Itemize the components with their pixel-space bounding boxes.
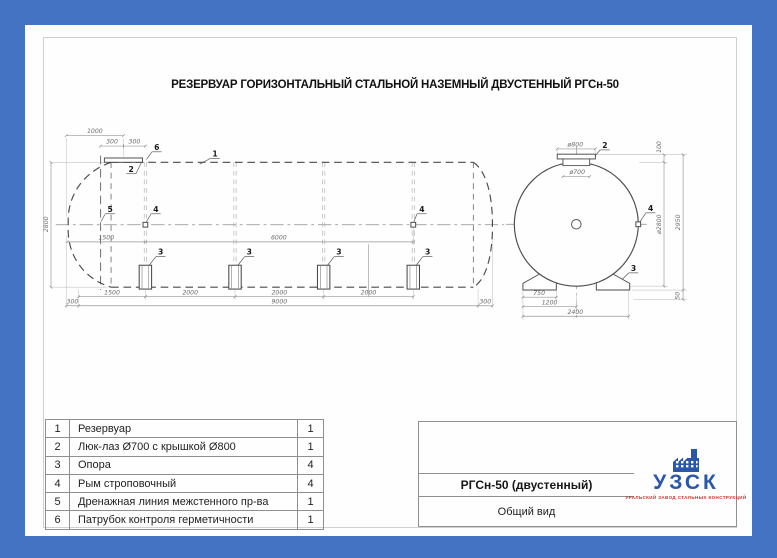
wall-section-lines — [144, 162, 414, 296]
table-row: 6 Патрубок контроля герметичности 1 — [46, 511, 324, 529]
dim-50: 50 — [674, 292, 681, 300]
tank-supports-side — [139, 265, 419, 289]
logo-text: УЗСК — [653, 472, 719, 493]
part-qty: 1 — [298, 511, 324, 529]
manhole-side — [104, 158, 142, 162]
callout-4-end: 4 — [648, 204, 653, 213]
side-view-callouts: 1 2 6 5 4 4 3 3 3 3 — [107, 143, 430, 257]
dim-1200: 1200 — [542, 299, 558, 306]
dim-300-b: 300 — [129, 139, 141, 146]
dim-1500-mid: 1500 — [98, 235, 114, 242]
part-qty: 1 — [298, 420, 324, 438]
part-number: 6 — [46, 511, 70, 529]
lifting-lug-marker-end — [636, 222, 641, 227]
dim-750: 750 — [533, 290, 545, 297]
title-block: РГСн-50 (двустенный) Общий вид УЗСК — [418, 421, 737, 527]
company-logo: УЗСК УРАЛЬСКИЙ ЗАВОД СТАЛЬНЫХ КОНСТРУКЦИ… — [634, 422, 738, 526]
dim-9000: 9000 — [271, 298, 287, 305]
tank-end-circle — [514, 162, 638, 286]
dim-2000-c: 2000 — [361, 289, 377, 296]
part-name: Рым строповочный — [70, 474, 298, 492]
callout-1: 1 — [212, 150, 217, 159]
dim-300-right: 300 — [479, 298, 491, 305]
dim-d700: ø700 — [568, 169, 585, 176]
part-qty: 1 — [298, 493, 324, 511]
table-row: 4 Рым строповочный 4 — [46, 474, 324, 492]
part-number: 5 — [46, 493, 70, 511]
callout-2: 2 — [128, 165, 133, 174]
dim-2800: 2800 — [43, 216, 50, 232]
dim-2400: 2400 — [567, 309, 583, 316]
parts-table: 1 Резервуар 1 2 Люк-лаз Ø700 с крышкой Ø… — [45, 419, 324, 530]
title-block-text-section: РГСн-50 (двустенный) Общий вид — [419, 422, 634, 526]
manhole-end — [557, 154, 595, 165]
page-background: { "page": { "title": "РЕЗЕРВУАР ГОРИЗОНТ… — [0, 0, 777, 558]
callout-4: 4 — [153, 205, 158, 214]
dim-100: 100 — [656, 141, 663, 153]
part-name: Дренажная линия межстенного пр-ва — [70, 493, 298, 511]
callout-5: 5 — [107, 205, 112, 214]
side-view-extension-lines — [51, 138, 492, 308]
part-qty: 4 — [298, 456, 324, 474]
part-number: 2 — [46, 438, 70, 456]
dim-2000-a: 2000 — [182, 289, 198, 296]
part-name: Патрубок контроля герметичности — [70, 511, 298, 529]
dim-1500-bottom: 1500 — [104, 289, 120, 296]
dim-300-left: 300 — [67, 298, 79, 305]
table-row: 2 Люк-лаз Ø700 с крышкой Ø800 1 — [46, 438, 324, 456]
callout-4b: 4 — [419, 205, 424, 214]
table-row: 3 Опора 4 — [46, 456, 324, 474]
side-view-dimension-labels: 2800 1000 300 300 1500 6000 1500 2000 20… — [43, 128, 491, 305]
view-name: Общий вид — [419, 498, 634, 526]
dim-2950: 2950 — [675, 214, 682, 230]
table-row: 5 Дренажная линия межстенного пр-ва 1 — [46, 493, 324, 511]
part-number: 3 — [46, 456, 70, 474]
title-block-empty-row — [419, 422, 634, 473]
callout-2-end: 2 — [602, 141, 607, 150]
dim-1000: 1000 — [87, 128, 103, 135]
part-name: Люк-лаз Ø700 с крышкой Ø800 — [70, 438, 298, 456]
dim-d800: ø800 — [567, 142, 584, 149]
part-name: Опора — [70, 456, 298, 474]
callout-3a: 3 — [158, 248, 163, 257]
dim-300-a: 300 — [106, 139, 118, 146]
part-number: 1 — [46, 420, 70, 438]
model-designation: РГСн-50 (двустенный) — [419, 473, 634, 497]
side-view: 2800 1000 300 300 1500 6000 1500 2000 20… — [43, 128, 504, 308]
part-number: 4 — [46, 474, 70, 492]
side-view-callout-leaders — [101, 152, 432, 265]
logo-tagline: УРАЛЬСКИЙ ЗАВОД СТАЛЬНЫХ КОНСТРУКЦИЙ — [625, 495, 746, 500]
callout-6: 6 — [154, 143, 159, 152]
part-name: Резервуар — [70, 420, 298, 438]
callout-3d: 3 — [425, 248, 430, 257]
callout-3c: 3 — [336, 248, 341, 257]
table-row: 1 Резервуар 1 — [46, 420, 324, 438]
part-qty: 4 — [298, 474, 324, 492]
part-qty: 1 — [298, 438, 324, 456]
dim-6000: 6000 — [271, 235, 287, 242]
callout-3b: 3 — [247, 248, 252, 257]
drawing-sheet: РЕЗЕРВУАР ГОРИЗОНТАЛЬНЫЙ СТАЛЬНОЙ НАЗЕМН… — [25, 25, 752, 536]
dim-2000-b: 2000 — [271, 289, 287, 296]
end-view: ø800 ø700 100 ø2800 2950 50 750 1200 240… — [506, 141, 687, 320]
callout-3-end: 3 — [631, 264, 636, 273]
dim-d2800: ø2800 — [656, 214, 663, 235]
factory-icon — [671, 448, 701, 472]
